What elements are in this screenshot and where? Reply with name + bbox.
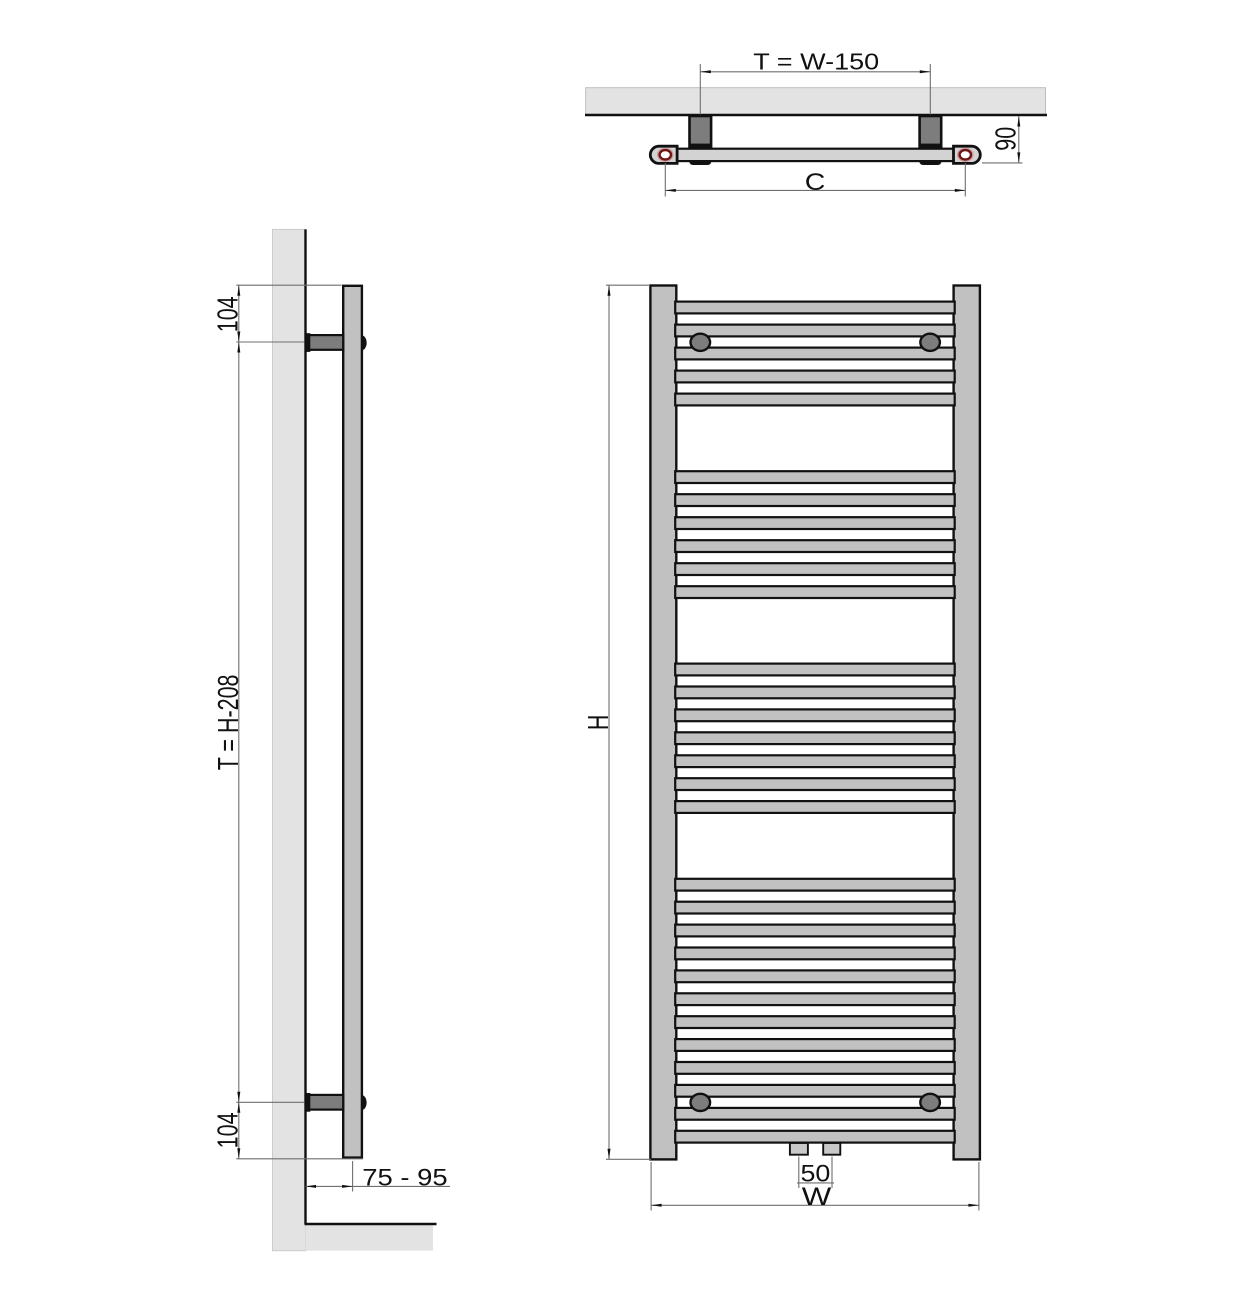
svg-text:T = W-150: T = W-150 bbox=[753, 49, 879, 75]
svg-text:C: C bbox=[805, 168, 826, 195]
svg-text:H: H bbox=[583, 715, 615, 731]
svg-text:104: 104 bbox=[213, 296, 245, 332]
svg-text:75 - 95: 75 - 95 bbox=[362, 1163, 447, 1191]
svg-text:90: 90 bbox=[991, 127, 1023, 151]
svg-text:W: W bbox=[802, 1182, 832, 1210]
svg-text:T = H-208: T = H-208 bbox=[213, 675, 245, 771]
svg-text:104: 104 bbox=[213, 1112, 245, 1148]
